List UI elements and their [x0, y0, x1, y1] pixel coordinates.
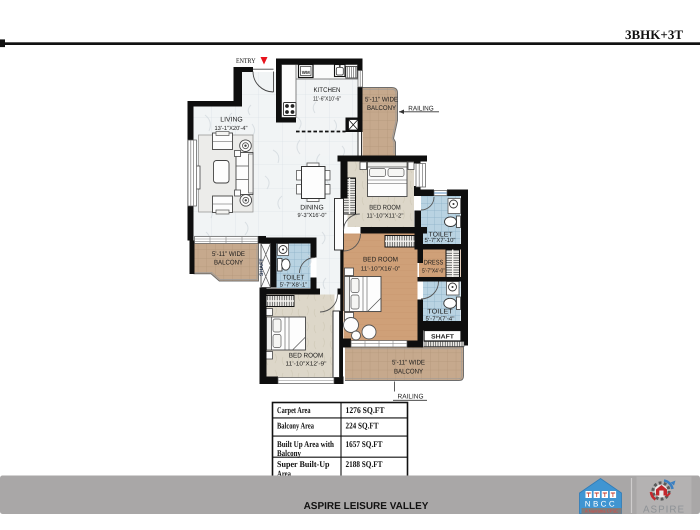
svg-text:BED ROOM: BED ROOM: [369, 205, 401, 212]
svg-text:Balcony: Balcony: [277, 448, 301, 458]
svg-text:TOILET: TOILET: [427, 309, 453, 316]
svg-text:BALCONY: BALCONY: [394, 369, 423, 376]
svg-text:DRESS: DRESS: [424, 260, 444, 267]
svg-text:Balcony Area: Balcony Area: [277, 421, 314, 431]
svg-text:5'-11" WIDE: 5'-11" WIDE: [212, 251, 245, 258]
svg-text:2188 SQ.FT: 2188 SQ.FT: [346, 459, 383, 469]
svg-text:5'-7"X4'-0": 5'-7"X4'-0": [422, 268, 445, 275]
svg-text:KITCHEN: KITCHEN: [314, 87, 341, 94]
svg-text:ASPIRE: ASPIRE: [643, 504, 685, 515]
svg-text:3BHK+3T: 3BHK+3T: [625, 27, 683, 42]
svg-text:BALCONY: BALCONY: [367, 105, 396, 112]
svg-text:224 SQ.FT: 224 SQ.FT: [346, 421, 379, 431]
svg-text:WM: WM: [302, 70, 310, 75]
svg-text:BALCONY: BALCONY: [214, 260, 243, 267]
svg-text:11'-6"X10'-6": 11'-6"X10'-6": [313, 96, 341, 103]
svg-text:NBCC: NBCC: [585, 500, 617, 509]
svg-text:ASPIRE LEISURE VALLEY: ASPIRE LEISURE VALLEY: [304, 501, 429, 512]
svg-text:BED ROOM: BED ROOM: [289, 353, 324, 360]
svg-text:ENTRY: ENTRY: [236, 57, 256, 65]
svg-text:5'-11" WIDE: 5'-11" WIDE: [365, 97, 398, 104]
svg-text:5'-7"X7'-4": 5'-7"X7'-4": [426, 316, 455, 323]
svg-text:TOILET: TOILET: [283, 275, 305, 282]
svg-text:LIVING: LIVING: [220, 117, 243, 124]
svg-text:BED ROOM: BED ROOM: [363, 257, 398, 264]
svg-text:1276 SQ.FT: 1276 SQ.FT: [346, 405, 385, 415]
svg-text:5'-7"X7'-10": 5'-7"X7'-10": [425, 237, 456, 244]
svg-text:DINING: DINING: [300, 205, 324, 212]
svg-text:1657 SQ.FT: 1657 SQ.FT: [346, 439, 383, 449]
svg-text:11'-10"X11'-2": 11'-10"X11'-2": [367, 213, 404, 220]
svg-text:Super Built-Up: Super Built-Up: [277, 459, 330, 469]
svg-text:5'-7"X8'-1": 5'-7"X8'-1": [280, 282, 308, 289]
svg-text:5'-11" WIDE: 5'-11" WIDE: [392, 360, 425, 367]
svg-text:13'-1"X20'-4": 13'-1"X20'-4": [215, 125, 248, 132]
svg-text:SHAFT: SHAFT: [431, 334, 454, 341]
svg-text:11'-10"X12'-9": 11'-10"X12'-9": [286, 361, 327, 368]
svg-text:9'-3"X16'-0": 9'-3"X16'-0": [298, 212, 327, 219]
svg-text:A Navratna CPSE: A Navratna CPSE: [585, 509, 618, 514]
svg-text:Carpet Area: Carpet Area: [277, 405, 311, 415]
svg-text:RAILING: RAILING: [398, 394, 424, 401]
svg-text:SHAFT: SHAFT: [259, 258, 265, 276]
svg-text:11'-10"X16'-0": 11'-10"X16'-0": [361, 266, 401, 273]
